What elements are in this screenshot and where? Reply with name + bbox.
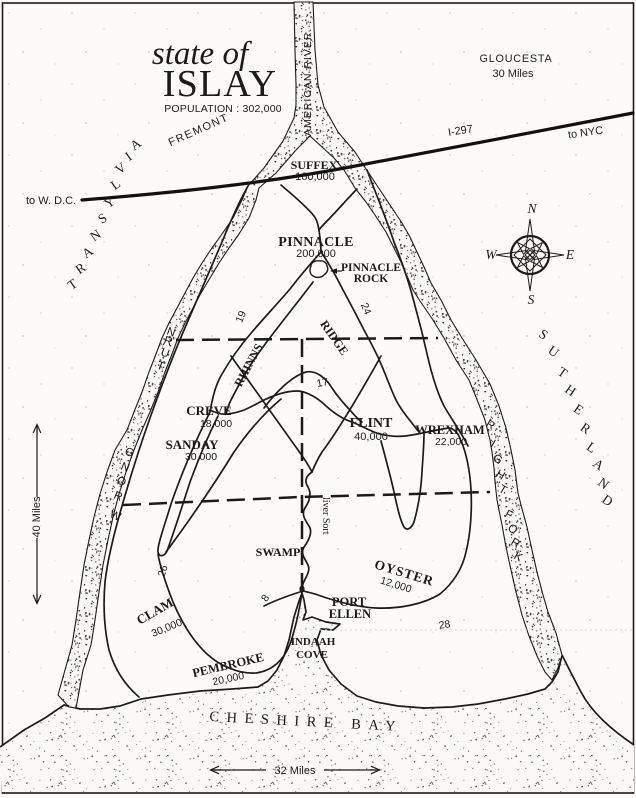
- svg-text:E: E: [565, 247, 575, 262]
- svg-text:30,000: 30,000: [185, 451, 217, 463]
- svg-text:200,000: 200,000: [296, 248, 336, 260]
- svg-text:40 Miles: 40 Miles: [31, 496, 43, 537]
- svg-text:liver Sort: liver Sort: [320, 497, 331, 535]
- svg-text:CREVE: CREVE: [186, 403, 232, 418]
- svg-text:ISLAY: ISLAY: [163, 63, 277, 105]
- svg-text:FLINT: FLINT: [350, 416, 393, 431]
- svg-text:SUFFEX: SUFFEX: [291, 158, 338, 172]
- svg-text:INDAAH: INDAAH: [291, 636, 336, 648]
- svg-text:160,000: 160,000: [295, 171, 335, 183]
- svg-text:COVE: COVE: [296, 649, 328, 661]
- svg-text:to W. D.C.: to W. D.C.: [26, 195, 76, 207]
- svg-text:N: N: [526, 201, 537, 216]
- svg-text:22,000: 22,000: [435, 436, 467, 448]
- svg-text:18,000: 18,000: [200, 418, 232, 430]
- svg-text:SANDAY: SANDAY: [166, 437, 220, 452]
- svg-text:GLOUCESTA: GLOUCESTA: [480, 53, 553, 65]
- svg-text:W: W: [485, 247, 498, 262]
- svg-text:S: S: [528, 292, 535, 307]
- svg-text:30 Miles: 30 Miles: [493, 68, 534, 80]
- svg-text:ROCK: ROCK: [354, 273, 389, 285]
- svg-text:ELLEN: ELLEN: [329, 607, 371, 621]
- svg-text:17: 17: [316, 376, 330, 390]
- svg-text:28: 28: [438, 618, 451, 632]
- svg-text:SWAMP: SWAMP: [256, 545, 301, 559]
- svg-text:32 Miles: 32 Miles: [275, 765, 316, 777]
- svg-text:40,000: 40,000: [354, 431, 388, 443]
- svg-text:WREXHAM: WREXHAM: [415, 423, 485, 437]
- svg-text:AMERICAN RIVER.: AMERICAN RIVER.: [302, 28, 314, 136]
